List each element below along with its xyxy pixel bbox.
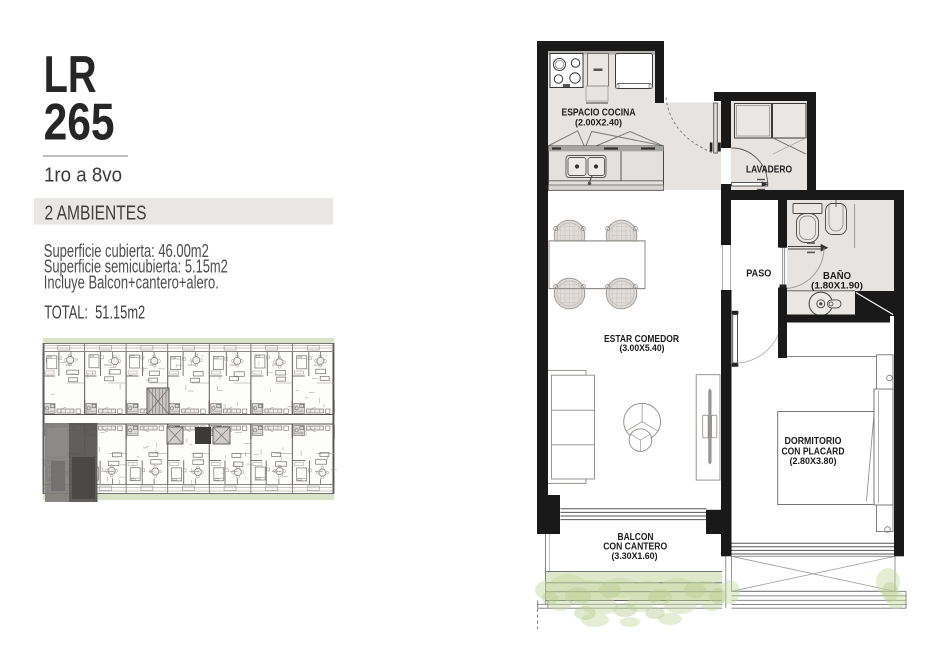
svg-text:(2.80X3.80): (2.80X3.80) [790, 456, 837, 466]
svg-text:(2.00X2.40): (2.00X2.40) [575, 118, 622, 128]
svg-text:LAVADERO: LAVADERO [746, 165, 792, 176]
svg-text:(3.30X1.60): (3.30X1.60) [612, 551, 658, 561]
svg-text:(3.00X5.40): (3.00X5.40) [620, 343, 665, 353]
svg-text:TOTAL: 51.15m2: TOTAL: 51.15m2 [44, 303, 145, 323]
svg-text:Incluye Balcon+cantero+alero.: Incluye Balcon+cantero+alero. [44, 273, 219, 293]
svg-text:2 AMBIENTES: 2 AMBIENTES [45, 203, 147, 225]
svg-text:1ro a 8vo: 1ro a 8vo [44, 165, 122, 187]
svg-text:(1.80X1.90): (1.80X1.90) [811, 281, 863, 291]
svg-text:PASO: PASO [746, 269, 771, 280]
svg-text:265: 265 [44, 94, 115, 152]
